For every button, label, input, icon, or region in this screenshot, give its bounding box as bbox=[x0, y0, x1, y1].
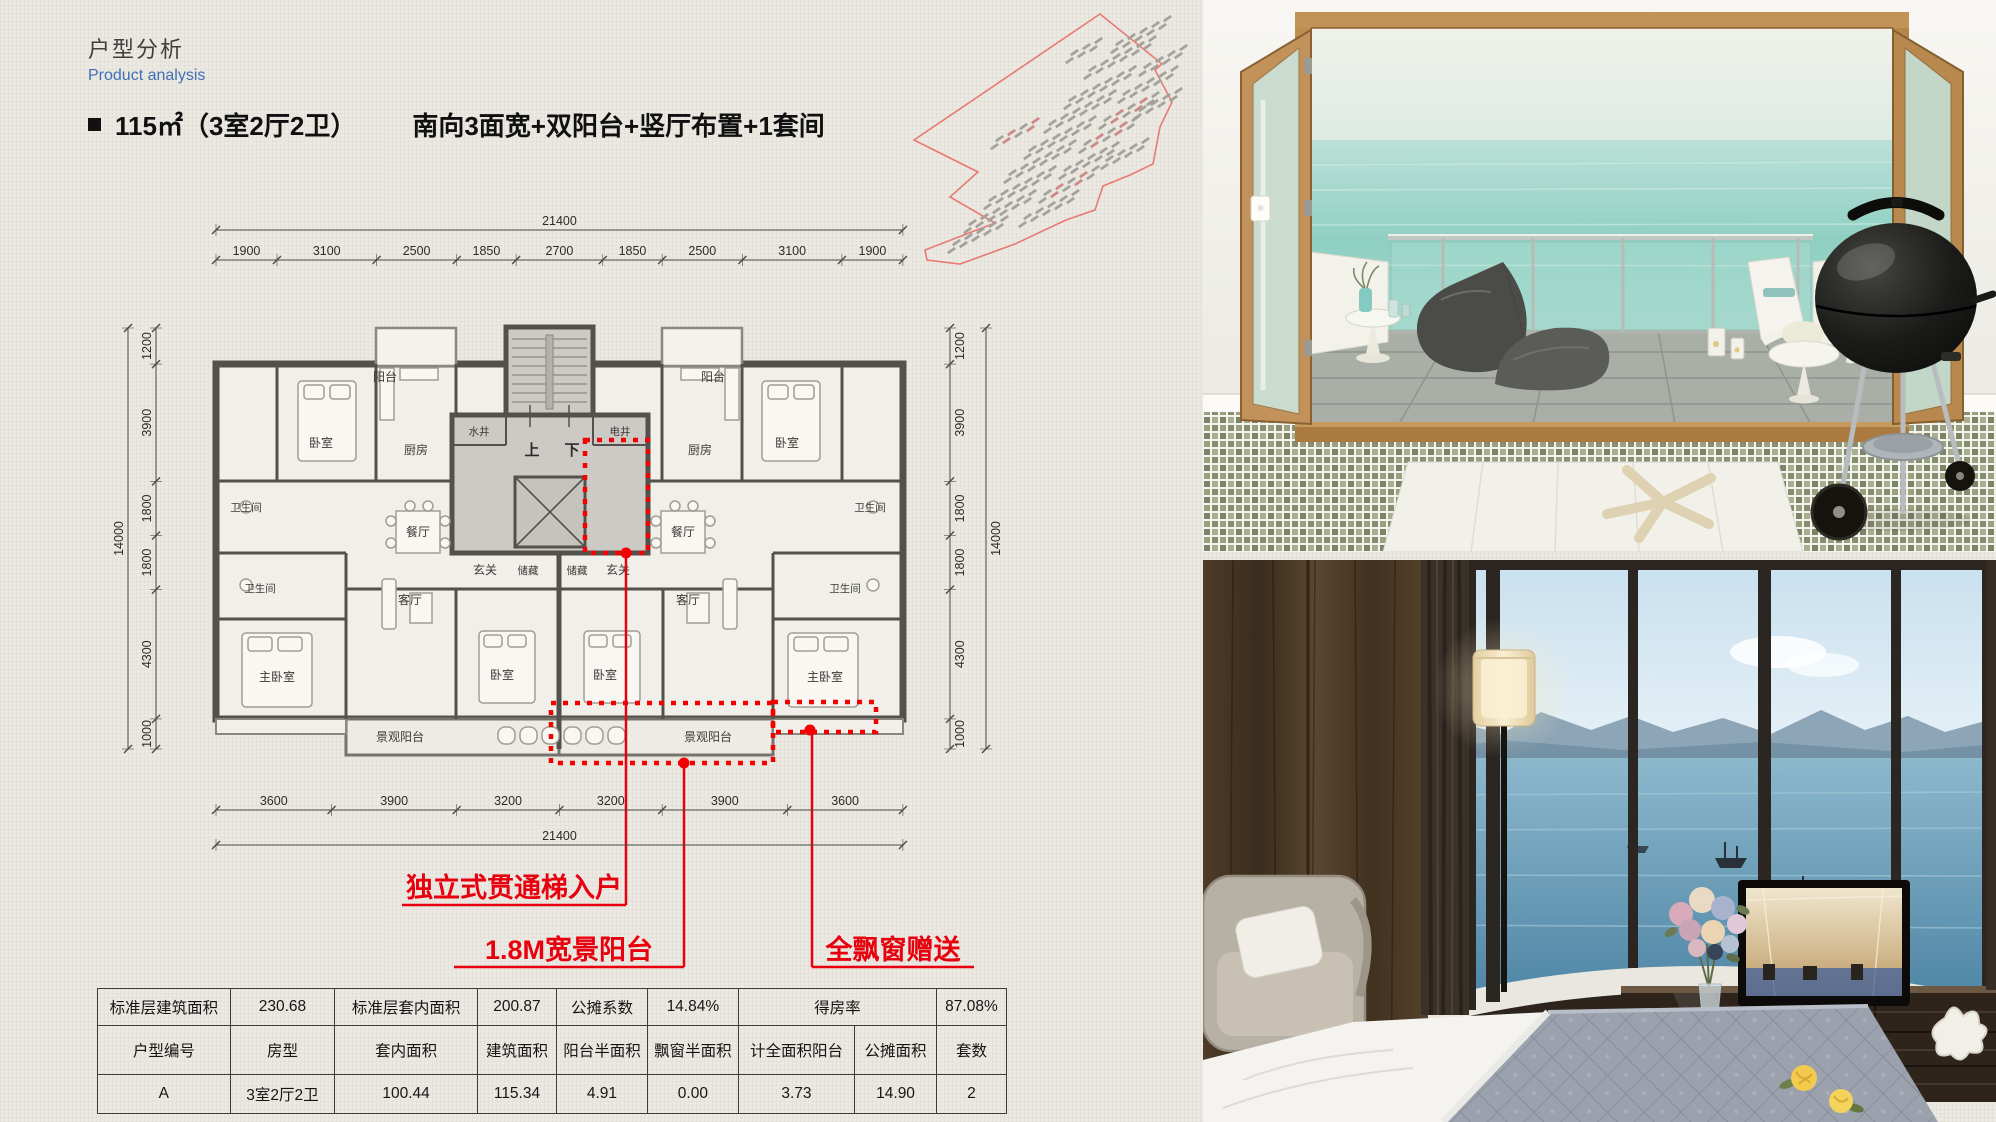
room-label-master-right: 主卧室 bbox=[807, 669, 843, 684]
svg-text:3900: 3900 bbox=[953, 409, 967, 437]
annotation-bay-window: 全飘窗赠送 bbox=[825, 934, 961, 965]
spec-table: 标准层建筑面积 230.68 标准层套内面积 200.87 公摊系数 14.84… bbox=[97, 988, 1007, 1114]
col-header: 阳台半面积 bbox=[557, 1026, 648, 1075]
svg-text:3200: 3200 bbox=[494, 794, 522, 808]
room-label-kitchen-right: 厨房 bbox=[688, 442, 712, 457]
svg-text:3900: 3900 bbox=[140, 409, 154, 437]
svg-text:21400: 21400 bbox=[542, 829, 577, 843]
headline-features: 南向3面宽+双阳台+竖厅布置+1套间 bbox=[412, 106, 824, 143]
cell-floor-nfa-value: 200.87 bbox=[477, 989, 556, 1026]
svg-text:1900: 1900 bbox=[859, 244, 887, 258]
page-subtitle: Product analysis bbox=[88, 67, 205, 85]
col-header: 公摊面积 bbox=[855, 1026, 937, 1075]
room-label-dining-right: 餐厅 bbox=[671, 524, 695, 539]
svg-text:1850: 1850 bbox=[619, 244, 647, 258]
room-label-water-shaft: 水井 bbox=[469, 425, 490, 438]
svg-text:1200: 1200 bbox=[140, 332, 154, 360]
room-label-bath-lower-right: 卫生间 bbox=[829, 582, 861, 595]
right-curtain-edge bbox=[1986, 560, 1996, 990]
cell-net-area: 100.44 bbox=[335, 1075, 478, 1114]
col-header: 户型编号 bbox=[98, 1026, 231, 1075]
svg-text:3900: 3900 bbox=[711, 794, 739, 808]
room-label-electric-shaft: 电井 bbox=[610, 425, 631, 438]
col-header: 飘窗半面积 bbox=[647, 1026, 738, 1075]
col-header: 计全面积阳台 bbox=[738, 1026, 854, 1075]
svg-text:1800: 1800 bbox=[140, 494, 154, 522]
photo-bedroom-sea-view bbox=[1203, 560, 1996, 1122]
svg-text:3900: 3900 bbox=[380, 794, 408, 808]
headline: 115㎡（3室2厅2卫） 南向3面宽+双阳台+竖厅布置+1套间 bbox=[88, 106, 825, 143]
photo-balcony-sea-view bbox=[1203, 0, 1996, 552]
room-label-storage-left: 储藏 bbox=[518, 564, 539, 577]
svg-text:1200: 1200 bbox=[953, 332, 967, 360]
room-label-bedroom-top-right: 卧室 bbox=[775, 435, 799, 450]
svg-text:1000: 1000 bbox=[953, 720, 967, 748]
room-label-view-balcony-left: 景观阳台 bbox=[376, 729, 424, 744]
room-label-storage-right: 储藏 bbox=[567, 564, 588, 577]
room-label-bath-upper-left: 卫生间 bbox=[230, 501, 262, 514]
svg-text:2500: 2500 bbox=[688, 244, 716, 258]
cell-floor-gfa-label: 标准层建筑面积 bbox=[98, 989, 231, 1026]
cell-full-balcony: 3.73 bbox=[738, 1075, 854, 1114]
svg-text:2500: 2500 bbox=[403, 244, 431, 258]
svg-text:1900: 1900 bbox=[233, 244, 261, 258]
svg-text:3100: 3100 bbox=[313, 244, 341, 258]
cell-gross-area: 115.34 bbox=[477, 1075, 556, 1114]
table-row-unit-a: A 3室2厅2卫 100.44 115.34 4.91 0.00 3.73 14… bbox=[98, 1075, 1007, 1114]
cell-unit-id: A bbox=[98, 1075, 231, 1114]
table-row-summary: 标准层建筑面积 230.68 标准层套内面积 200.87 公摊系数 14.84… bbox=[98, 989, 1007, 1026]
open-door-left bbox=[1241, 30, 1312, 424]
sea-view bbox=[1311, 28, 1893, 424]
svg-text:4300: 4300 bbox=[140, 640, 154, 668]
room-label-bedroom-mid-right: 卧室 bbox=[593, 667, 617, 682]
room-label-master-left: 主卧室 bbox=[259, 669, 295, 684]
floor-plan: 水井 电井 上 下 阳台 阳台 卧室 bbox=[100, 155, 1000, 985]
room-label-view-balcony-right: 景观阳台 bbox=[684, 729, 732, 744]
cell-bay-half: 0.00 bbox=[647, 1075, 738, 1114]
white-plank-path bbox=[1383, 462, 1803, 552]
room-label-foyer-left: 玄关 bbox=[473, 562, 497, 577]
svg-text:3200: 3200 bbox=[597, 794, 625, 808]
cell-floor-nfa-label: 标准层套内面积 bbox=[335, 989, 478, 1026]
cell-balcony-half: 4.91 bbox=[557, 1075, 648, 1114]
room-label-bedroom-mid-left: 卧室 bbox=[490, 667, 514, 682]
annotation-entry: 独立式贯通梯入户 bbox=[406, 872, 622, 903]
stairs-up-label: 上 bbox=[524, 442, 539, 459]
svg-text:3600: 3600 bbox=[831, 794, 859, 808]
cell-floor-gfa-value: 230.68 bbox=[230, 989, 335, 1026]
svg-text:1800: 1800 bbox=[953, 549, 967, 577]
svg-text:14000: 14000 bbox=[112, 521, 126, 556]
annotation-balcony: 1.8M宽景阳台 bbox=[485, 934, 653, 965]
col-header: 房型 bbox=[230, 1026, 335, 1075]
svg-text:2700: 2700 bbox=[546, 244, 574, 258]
table-row-headers: 户型编号 房型 套内面积 建筑面积 阳台半面积 飘窗半面积 计全面积阳台 公摊面… bbox=[98, 1026, 1007, 1075]
cell-share-coef-label: 公摊系数 bbox=[557, 989, 648, 1026]
headline-area-spec: 115㎡（3室2厅2卫） bbox=[115, 106, 356, 143]
room-label-bath-lower-left: 卫生间 bbox=[244, 582, 276, 595]
page-header: 户型分析 Product analysis bbox=[88, 32, 205, 85]
svg-text:1800: 1800 bbox=[953, 494, 967, 522]
svg-text:14000: 14000 bbox=[989, 521, 1000, 556]
room-label-living-right: 客厅 bbox=[676, 592, 700, 607]
svg-text:1000: 1000 bbox=[140, 720, 154, 748]
bullet-square-icon bbox=[88, 118, 101, 131]
cell-efficiency-value: 87.08% bbox=[936, 989, 1006, 1026]
cell-unit-type: 3室2厅2卫 bbox=[230, 1075, 335, 1114]
slide: 户型分析 Product analysis 115㎡（3室2厅2卫） 南向3面宽… bbox=[0, 0, 1996, 1122]
room-label-balcony-right: 阳台 bbox=[701, 369, 725, 384]
cell-shared-area: 14.90 bbox=[855, 1075, 937, 1114]
svg-text:3600: 3600 bbox=[260, 794, 288, 808]
page-title: 户型分析 bbox=[88, 32, 205, 64]
svg-text:4300: 4300 bbox=[953, 640, 967, 668]
room-label-balcony-left: 阳台 bbox=[373, 369, 397, 384]
tv bbox=[1738, 880, 1910, 1014]
room-label-dining-left: 餐厅 bbox=[406, 524, 430, 539]
stairs-down-label: 下 bbox=[564, 442, 579, 459]
svg-text:21400: 21400 bbox=[542, 214, 577, 228]
svg-text:1800: 1800 bbox=[140, 549, 154, 577]
curtain bbox=[1421, 560, 1469, 1015]
room-label-bedroom-top-left: 卧室 bbox=[309, 435, 333, 450]
col-header: 套内面积 bbox=[335, 1026, 478, 1075]
col-header: 套数 bbox=[936, 1026, 1006, 1075]
room-label-living-left: 客厅 bbox=[398, 592, 422, 607]
room-label-bath-upper-right: 卫生间 bbox=[854, 501, 886, 514]
svg-text:3100: 3100 bbox=[778, 244, 806, 258]
col-header: 建筑面积 bbox=[477, 1026, 556, 1075]
room-label-kitchen-left: 厨房 bbox=[404, 442, 428, 457]
cell-efficiency-label: 得房率 bbox=[738, 989, 936, 1026]
cell-unit-count: 2 bbox=[936, 1075, 1006, 1114]
svg-text:1850: 1850 bbox=[473, 244, 501, 258]
cell-share-coef-value: 14.84% bbox=[647, 989, 738, 1026]
